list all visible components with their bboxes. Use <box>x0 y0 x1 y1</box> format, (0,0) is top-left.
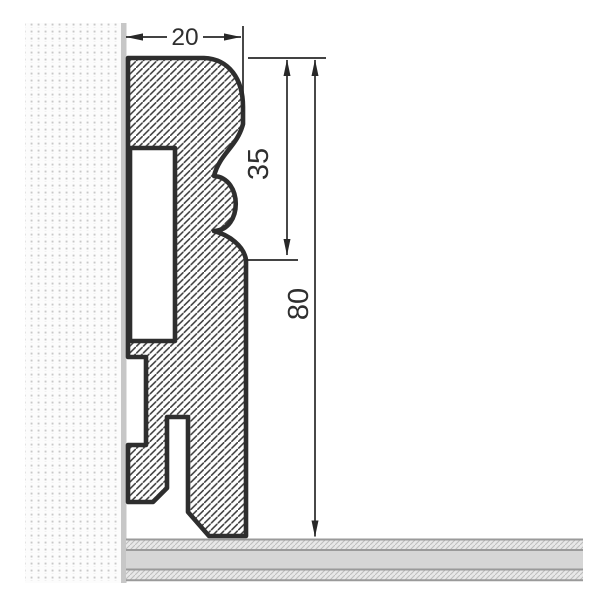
total-height-dimension-label: 80 <box>283 288 315 320</box>
floor-section <box>126 539 583 581</box>
wall-section <box>25 23 127 583</box>
floor-top-layer <box>126 540 583 550</box>
technical-drawing-page: 20 35 80 <box>0 0 604 604</box>
floor-bottom-layer <box>126 570 583 581</box>
width-dimension-label: 20 <box>171 24 198 51</box>
upper-height-dimension-label: 35 <box>243 148 275 180</box>
wall-finish-strip <box>121 23 127 583</box>
skirting-profile-drawing: 20 35 80 <box>0 0 604 604</box>
wall-dots-texture <box>25 23 121 583</box>
